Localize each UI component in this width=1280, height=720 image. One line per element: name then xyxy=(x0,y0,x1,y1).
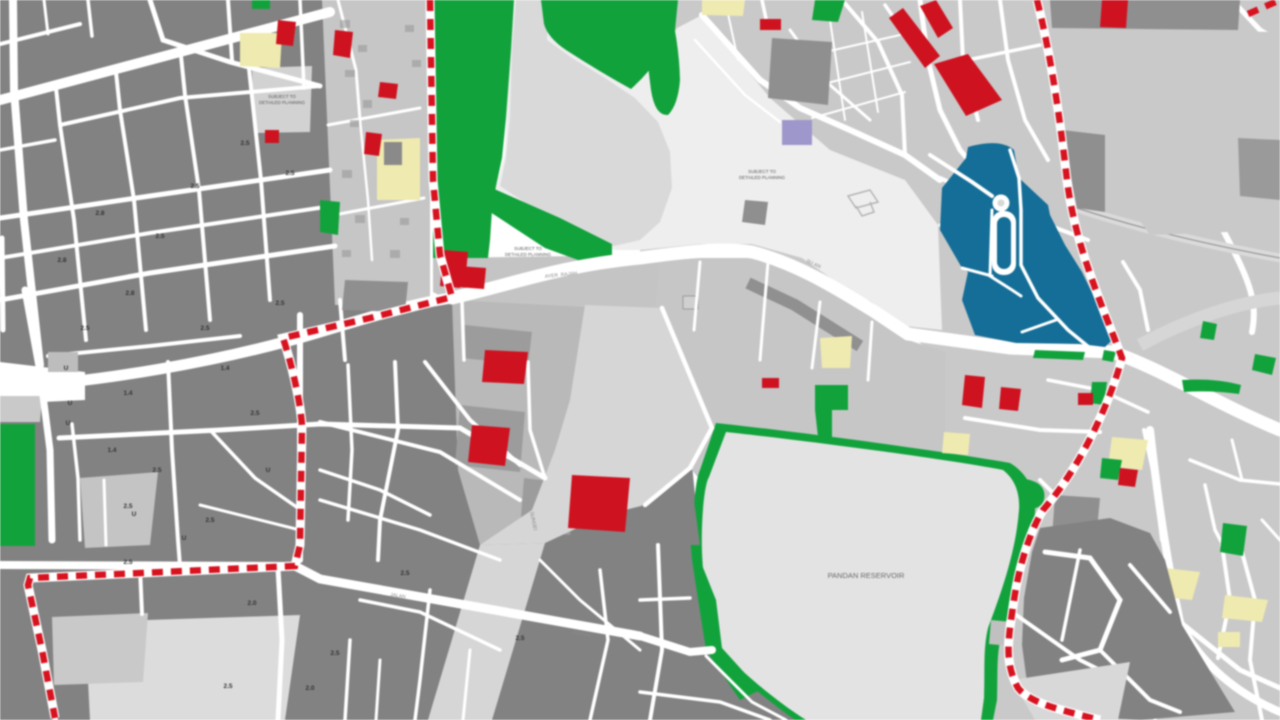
svg-text:2.5: 2.5 xyxy=(200,325,209,332)
svg-text:U: U xyxy=(64,365,69,372)
svg-text:DETAILED PLANNING: DETAILED PLANNING xyxy=(505,252,551,257)
svg-text:U: U xyxy=(68,400,73,407)
svg-text:1.4: 1.4 xyxy=(220,365,229,372)
svg-text:2.5: 2.5 xyxy=(123,503,132,510)
svg-text:2.8: 2.8 xyxy=(95,210,104,217)
svg-text:SUBJECT TO: SUBJECT TO xyxy=(748,169,776,174)
svg-text:2.5: 2.5 xyxy=(515,635,524,642)
svg-text:2.5: 2.5 xyxy=(223,683,232,690)
svg-text:2.5: 2.5 xyxy=(190,183,199,190)
svg-text:2.5: 2.5 xyxy=(152,467,161,474)
svg-text:U: U xyxy=(66,420,71,427)
svg-text:2.5: 2.5 xyxy=(80,325,89,332)
svg-text:2.5: 2.5 xyxy=(330,650,339,657)
svg-text:2.5: 2.5 xyxy=(275,300,284,307)
svg-text:2.5: 2.5 xyxy=(123,559,132,566)
svg-text:2.5: 2.5 xyxy=(400,570,409,577)
svg-text:U: U xyxy=(182,535,187,542)
svg-text:SUBJECT TO: SUBJECT TO xyxy=(514,246,542,251)
svg-text:2.8: 2.8 xyxy=(125,290,134,297)
svg-text:2.5: 2.5 xyxy=(240,140,249,147)
svg-text:2.0: 2.0 xyxy=(247,600,256,607)
svg-text:1.4: 1.4 xyxy=(107,447,116,454)
svg-text:SUBJECT TO: SUBJECT TO xyxy=(268,94,296,99)
svg-text:2.5: 2.5 xyxy=(250,410,259,417)
svg-text:2.5: 2.5 xyxy=(205,517,214,524)
svg-text:2.5: 2.5 xyxy=(285,170,294,177)
svg-text:DETAILED PLANNING: DETAILED PLANNING xyxy=(259,100,305,105)
svg-text:2.5: 2.5 xyxy=(155,233,164,240)
svg-text:DETAILED PLANNING: DETAILED PLANNING xyxy=(739,175,785,180)
svg-text:U: U xyxy=(266,467,271,474)
svg-text:2.0: 2.0 xyxy=(305,685,314,692)
svg-text:1.4: 1.4 xyxy=(123,390,132,397)
svg-text:PANDAN RESERVOIR: PANDAN RESERVOIR xyxy=(828,571,905,580)
svg-text:U: U xyxy=(132,511,137,518)
svg-text:2.8: 2.8 xyxy=(57,257,66,264)
